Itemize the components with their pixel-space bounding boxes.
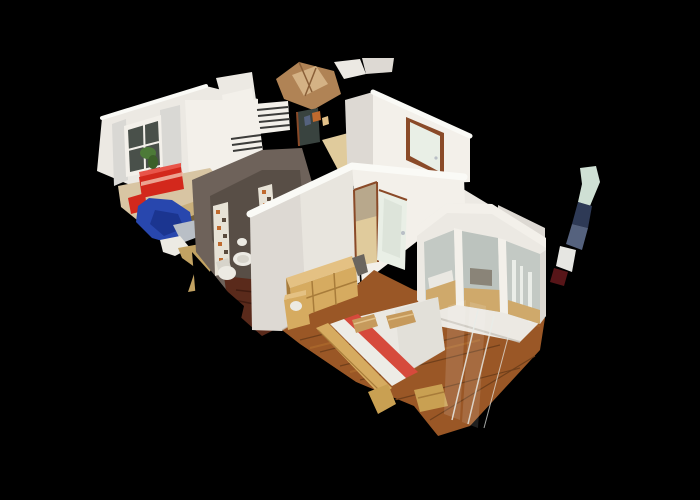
entry-door-handle — [434, 156, 437, 159]
mosaic-tile — [224, 250, 228, 254]
bidet — [218, 266, 236, 280]
paper-roll — [237, 238, 247, 246]
toilet-seat — [237, 255, 249, 263]
mosaic-tile — [223, 234, 227, 238]
plant-leaves-dark — [148, 155, 158, 169]
apartment-3d-model — [0, 0, 700, 500]
mosaic-tile — [217, 226, 221, 230]
wall-top-bit — [362, 58, 394, 74]
mosaic-tile — [267, 197, 271, 201]
bedroom-door-handle — [401, 231, 405, 235]
mosaic-tile — [262, 190, 266, 194]
kitchen-wall — [222, 88, 256, 128]
window-mullion-v — [144, 125, 145, 169]
mosaic-tile — [222, 218, 226, 222]
white-bag — [290, 301, 302, 311]
bedroom-door-frosted-glass — [382, 198, 402, 258]
mirror-reflection-dark — [470, 268, 492, 286]
dollhouse-viewport[interactable] — [0, 0, 700, 500]
wardrobe-end-panel — [540, 250, 546, 324]
mosaic-tile — [216, 210, 220, 214]
nightstand — [284, 295, 310, 330]
mosaic-tile — [218, 242, 222, 246]
